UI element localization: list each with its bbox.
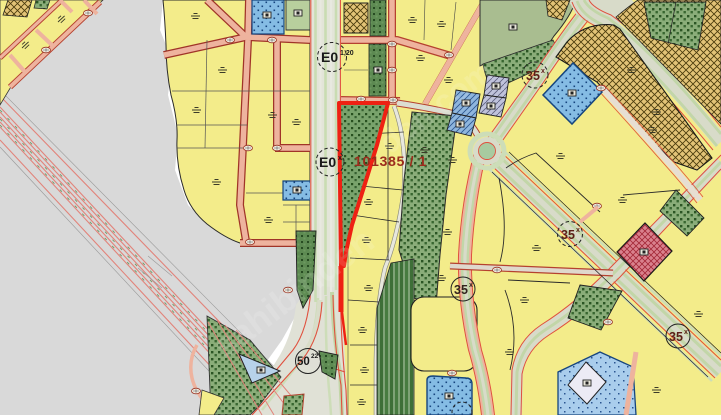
svg-text:35: 35	[454, 283, 468, 297]
svg-text:22: 22	[311, 353, 319, 360]
svg-text:x: x	[684, 329, 688, 336]
svg-text:1,20: 1,20	[340, 50, 354, 57]
svg-text:x: x	[541, 68, 545, 75]
svg-text:x: x	[338, 155, 342, 162]
svg-text:35: 35	[526, 69, 540, 83]
svg-text:x: x	[576, 227, 580, 234]
svg-text:x: x	[469, 282, 473, 289]
svg-text:E0: E0	[321, 49, 338, 65]
svg-text:50: 50	[297, 356, 310, 368]
svg-text:35: 35	[561, 228, 575, 242]
svg-text:35: 35	[669, 330, 683, 344]
svg-text:E0: E0	[319, 154, 336, 170]
